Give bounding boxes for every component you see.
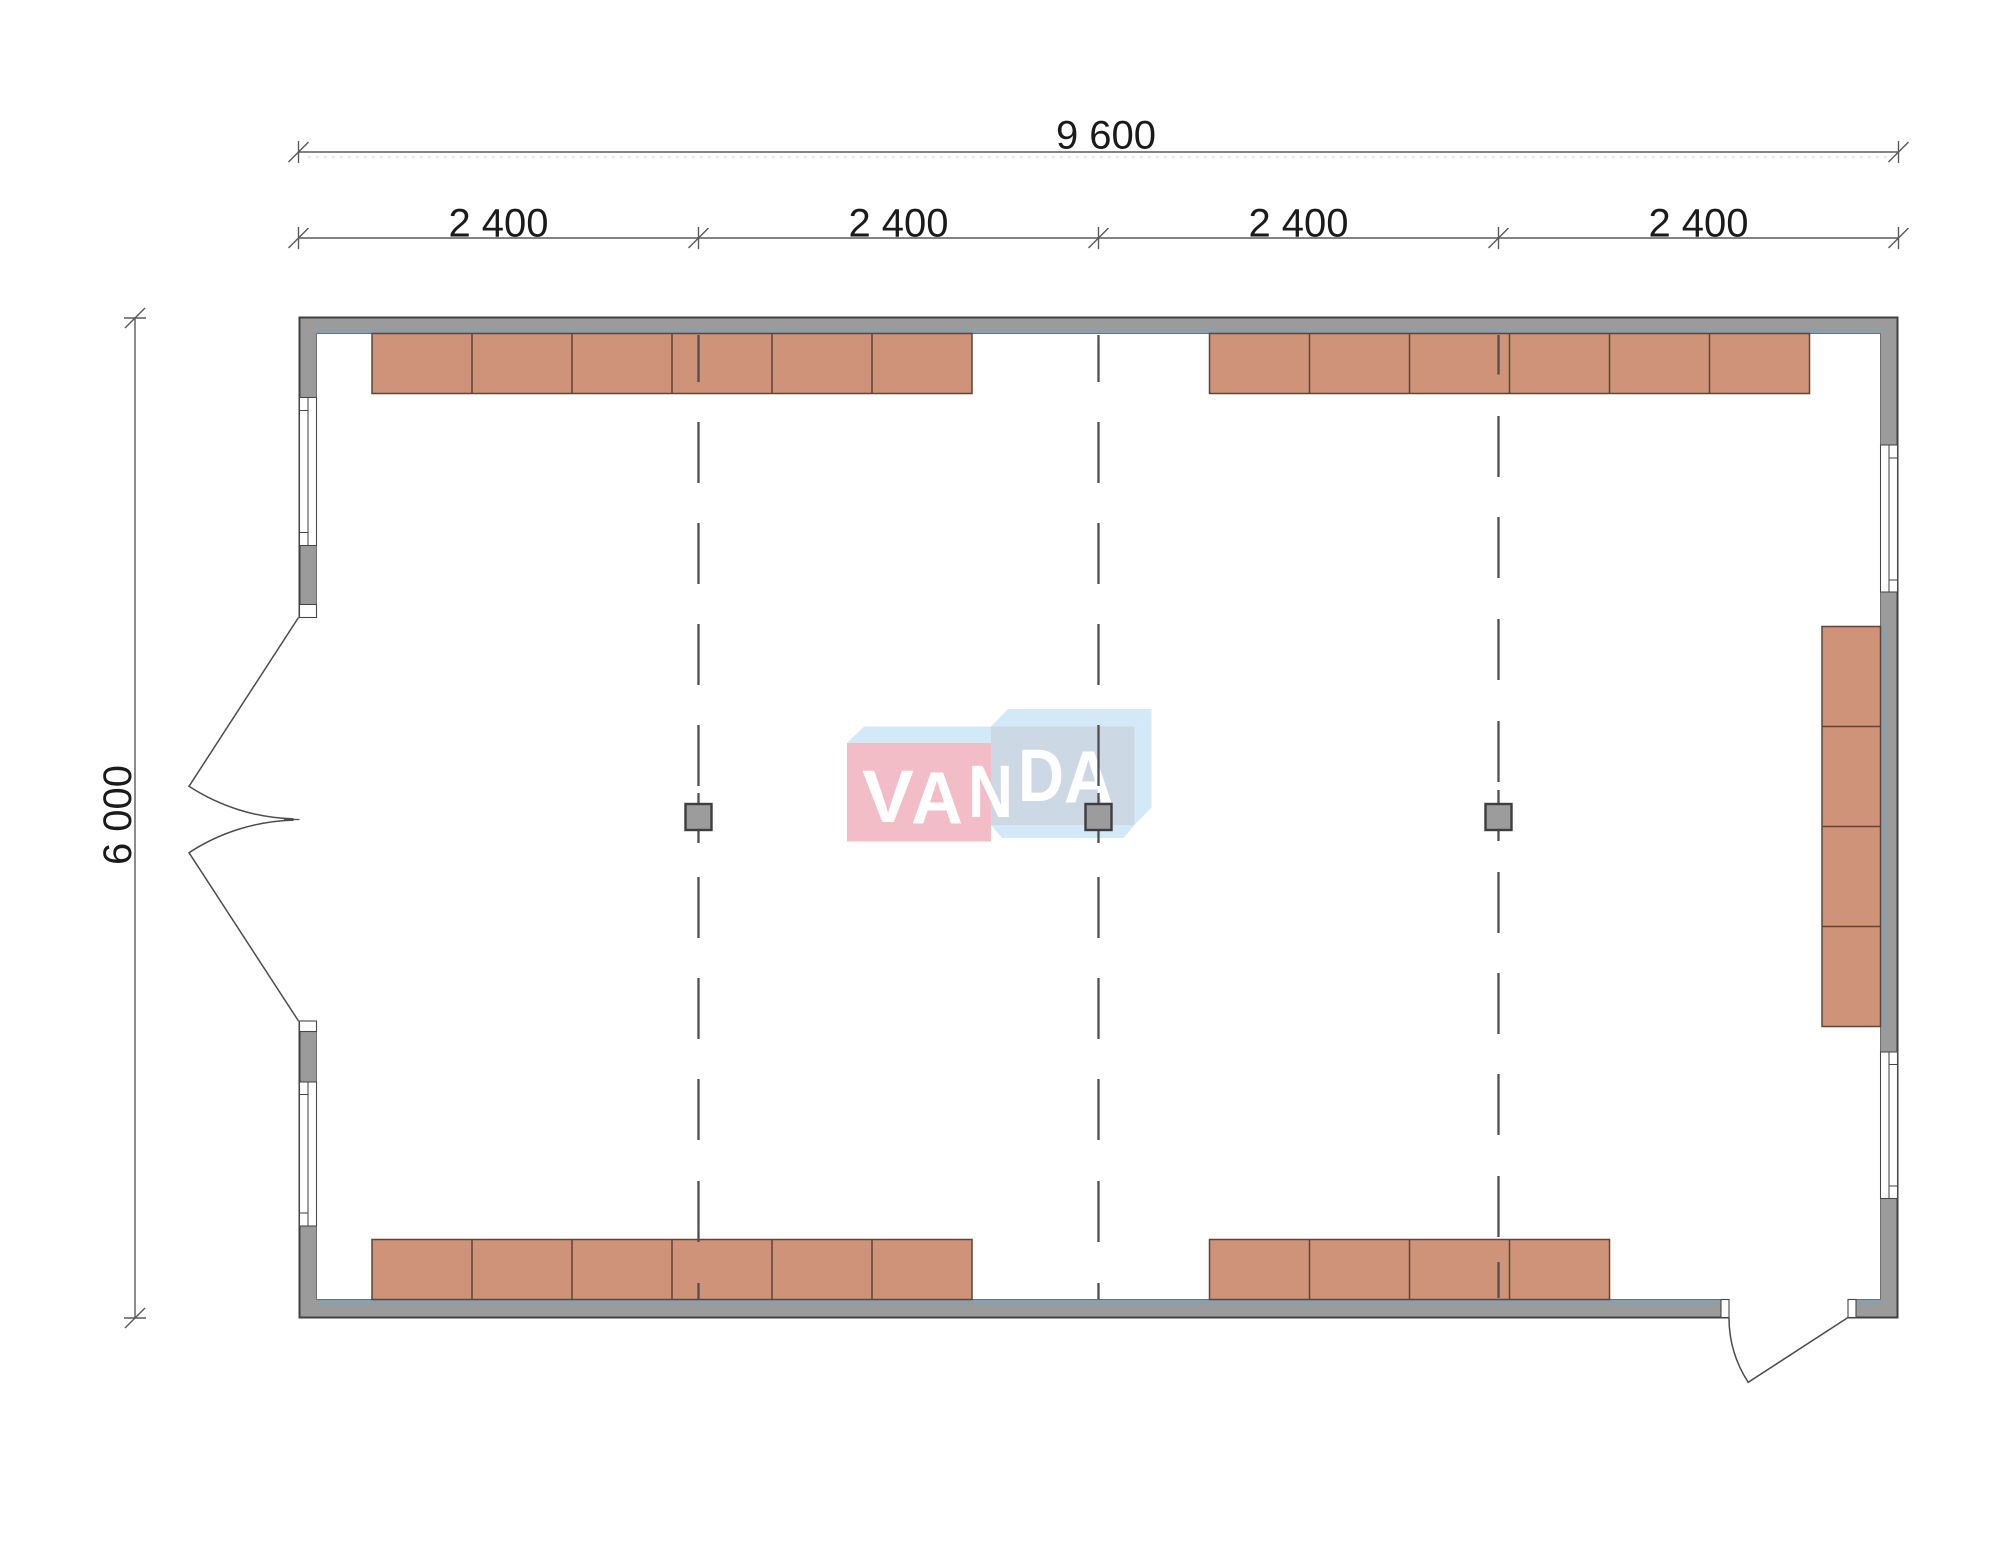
svg-text:D: D: [1018, 734, 1064, 817]
svg-text:9 600: 9 600: [1056, 114, 1156, 158]
svg-text:V: V: [862, 755, 914, 838]
svg-text:2 400: 2 400: [848, 202, 948, 246]
svg-text:2 400: 2 400: [448, 202, 548, 246]
svg-text:6 000: 6 000: [96, 765, 140, 865]
svg-text:A: A: [911, 756, 963, 839]
svg-text:2 400: 2 400: [1248, 202, 1348, 246]
svg-text:N: N: [968, 750, 1013, 833]
svg-text:2 400: 2 400: [1648, 202, 1748, 246]
